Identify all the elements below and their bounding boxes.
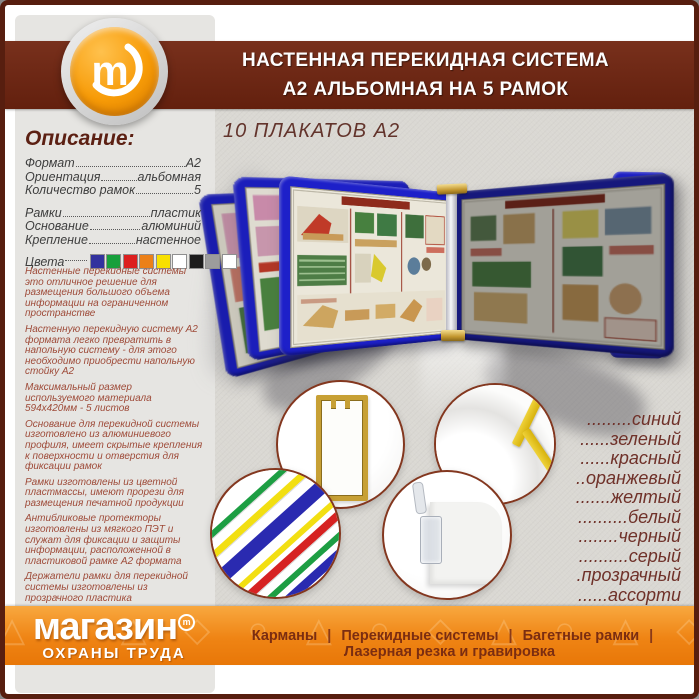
brand-logo[interactable]: магазинm ОХРАНЫ ТРУДА xyxy=(25,608,203,661)
frame-color-option: ..........серый xyxy=(576,547,681,567)
frame-color-list: .........синий ......зеленый ......красн… xyxy=(576,410,681,605)
menu-separator: | xyxy=(647,628,655,644)
description-bullet: Настенные перекидные системы это отлично… xyxy=(25,267,204,320)
spec-row-mounting: Крепление настенное xyxy=(25,234,201,248)
spec-label: Формат xyxy=(25,157,75,171)
bracket-hook xyxy=(331,400,336,409)
frame-color-option: .......желтый xyxy=(576,488,681,508)
menu-item-laser-cutting[interactable]: Лазерная резка и гравировка xyxy=(336,644,563,660)
poster-illustration xyxy=(461,184,665,350)
description-bullet: Рамки изготовлены из цветной пластмассы,… xyxy=(25,478,204,510)
page-title: НАСТЕННАЯ ПЕРЕКИДНАЯ СИСТЕМА А2 АЛЬБОМНА… xyxy=(165,50,686,108)
bracket-hook xyxy=(345,400,350,409)
detail-circle-color-frames xyxy=(210,468,341,599)
frame-color-option: ........черный xyxy=(576,527,681,547)
menu-separator: | xyxy=(507,628,515,644)
spec-row-format: Формат А2 xyxy=(25,157,201,171)
holder-peg xyxy=(412,481,427,514)
company-logo[interactable]: m xyxy=(61,18,168,125)
description-bullet: Максимальный размер используемого матери… xyxy=(25,383,204,415)
flip-frame-front-left[interactable] xyxy=(279,175,454,357)
spec-list: Формат А2 Ориентация альбомная Количеств… xyxy=(25,157,201,269)
frame-color-option: ......красный xyxy=(576,449,681,469)
brand-subname: ОХРАНЫ ТРУДА xyxy=(25,646,203,661)
page-title-line1: НАСТЕННАЯ ПЕРЕКИДНАЯ СИСТЕМА xyxy=(165,50,686,72)
dotted-leader xyxy=(63,216,150,217)
description-bullet: Основание для перекидной системы изготов… xyxy=(25,420,204,473)
footer-menu: Карманы|Перекидные системы|Багетные рамк… xyxy=(210,628,689,660)
spec-row-frames: Рамки пластик xyxy=(25,207,201,221)
spec-label: Ориентация xyxy=(25,171,100,185)
color-swatch-gray xyxy=(205,254,220,269)
spec-value: 5 xyxy=(194,184,201,198)
flip-frame-front-right[interactable] xyxy=(454,173,674,358)
spec-value: А2 xyxy=(186,157,201,171)
detail-circle-holder-clip xyxy=(382,470,512,600)
color-swatch-clear xyxy=(222,254,237,269)
transparent-clip xyxy=(420,516,442,564)
spec-row-frame-count: Количество рамок 5 xyxy=(25,184,201,198)
svg-text:m: m xyxy=(91,47,128,94)
spec-value: настенное xyxy=(136,234,201,248)
spec-value: алюминий xyxy=(141,220,201,234)
dotted-leader xyxy=(89,243,135,244)
dotted-leader xyxy=(136,193,193,194)
product-card: НАСТЕННАЯ ПЕРЕКИДНАЯ СИСТЕМА А2 АЛЬБОМНА… xyxy=(0,0,699,699)
description-heading: Описание: xyxy=(25,127,205,151)
dotted-leader xyxy=(101,180,136,181)
hinge-column xyxy=(446,192,457,338)
description-bullet: Антибликовые протекторы изготовлены из м… xyxy=(25,514,204,567)
brand-name: магазинm xyxy=(25,608,203,646)
description-bullet: Настенную перекидную систему А2 формата … xyxy=(25,325,204,378)
colored-frames-illustration xyxy=(210,468,341,599)
hinge-bracket-bottom xyxy=(441,330,465,341)
frame-color-option: .прозрачный xyxy=(576,566,681,586)
spec-row-base: Основание алюминий xyxy=(25,220,201,234)
frame-color-option: ......ассорти xyxy=(576,586,681,606)
hinge-bracket-top xyxy=(437,183,467,195)
poster-illustration xyxy=(290,186,448,348)
dotted-leader xyxy=(76,166,185,167)
trademark-icon: m xyxy=(178,614,195,631)
spec-value: пластик xyxy=(151,207,201,221)
spec-value: альбомная xyxy=(138,171,202,185)
footer-band: △ ○ △ ◇ ○ △ ○ ◇ △ ○ △ ◇ ○ △ ○ △ ◇ △ мага… xyxy=(5,606,694,665)
spec-label: Крепление xyxy=(25,234,88,248)
frame-color-option: ......зеленый xyxy=(576,430,681,450)
menu-item-baguette-frames[interactable]: Багетные рамки xyxy=(515,628,648,644)
spec-label: Количество рамок xyxy=(25,184,135,198)
frame-color-option: ..........белый xyxy=(576,508,681,528)
spec-label: Основание xyxy=(25,220,89,234)
logo-m-icon: m xyxy=(70,27,159,116)
poster-count-subtitle: 10 ПЛАКАТОВ А2 xyxy=(223,120,400,143)
dotted-leader xyxy=(65,260,87,261)
description-bullet: Держатели рамки для перекидной системы и… xyxy=(25,572,204,604)
dotted-leader xyxy=(90,229,141,230)
spec-label: Рамки xyxy=(25,207,62,221)
page-title-line2: А2 АЛЬБОМНАЯ НА 5 РАМОК xyxy=(165,79,686,101)
menu-item-flip-systems[interactable]: Перекидные системы xyxy=(333,628,506,644)
frame-color-option: ..оранжевый xyxy=(576,469,681,489)
frame-color-option: .........синий xyxy=(576,410,681,430)
spec-row-orientation: Ориентация альбомная xyxy=(25,171,201,185)
menu-item-pockets[interactable]: Карманы xyxy=(244,628,326,644)
